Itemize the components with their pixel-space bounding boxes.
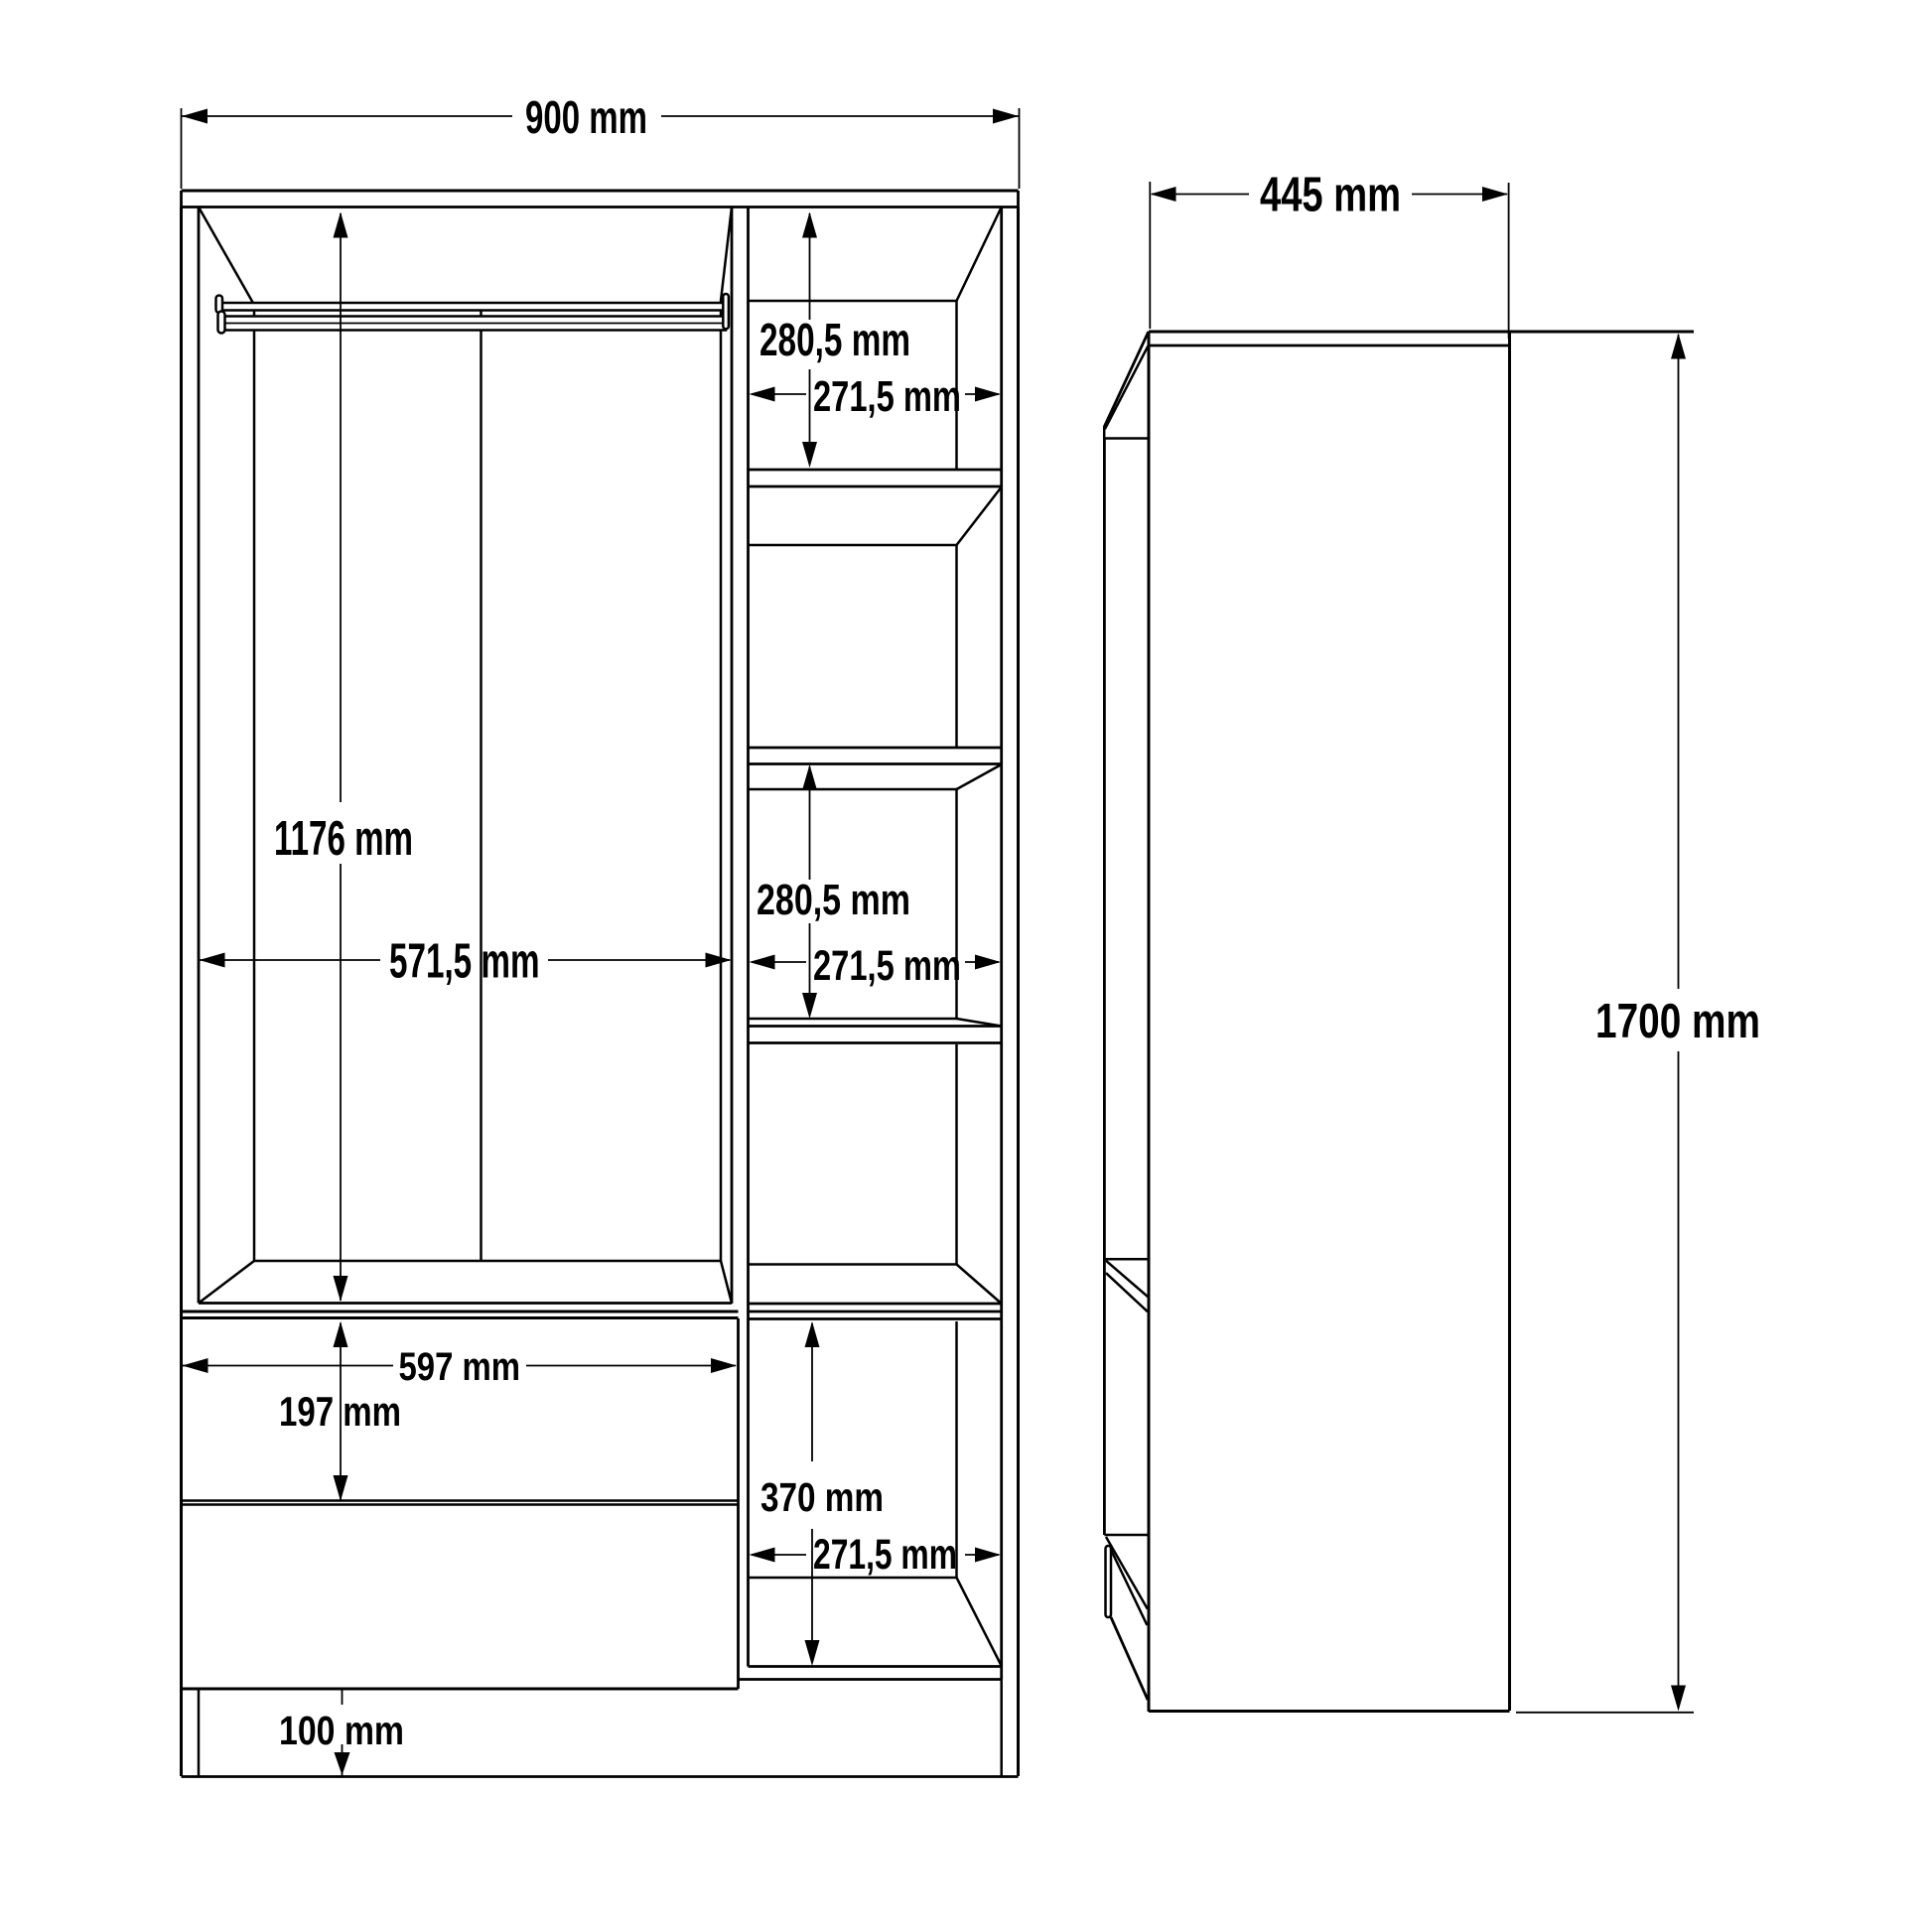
svg-text:571,5 mm: 571,5 mm: [389, 934, 540, 989]
svg-text:280,5 mm: 280,5 mm: [757, 877, 910, 924]
svg-text:280,5 mm: 280,5 mm: [759, 314, 910, 365]
svg-text:597 mm: 597 mm: [399, 1345, 521, 1389]
svg-text:271,5 mm: 271,5 mm: [813, 373, 961, 421]
svg-text:271,5 mm: 271,5 mm: [813, 1531, 957, 1578]
svg-text:445 mm: 445 mm: [1260, 169, 1401, 222]
svg-text:900 mm: 900 mm: [525, 91, 647, 143]
svg-text:1700 mm: 1700 mm: [1595, 995, 1760, 1048]
svg-text:100 mm: 100 mm: [279, 1708, 404, 1753]
svg-text:271,5 mm: 271,5 mm: [813, 942, 961, 989]
svg-text:370 mm: 370 mm: [760, 1474, 884, 1520]
svg-text:197 mm: 197 mm: [279, 1389, 401, 1435]
svg-text:1176 mm: 1176 mm: [274, 811, 413, 866]
